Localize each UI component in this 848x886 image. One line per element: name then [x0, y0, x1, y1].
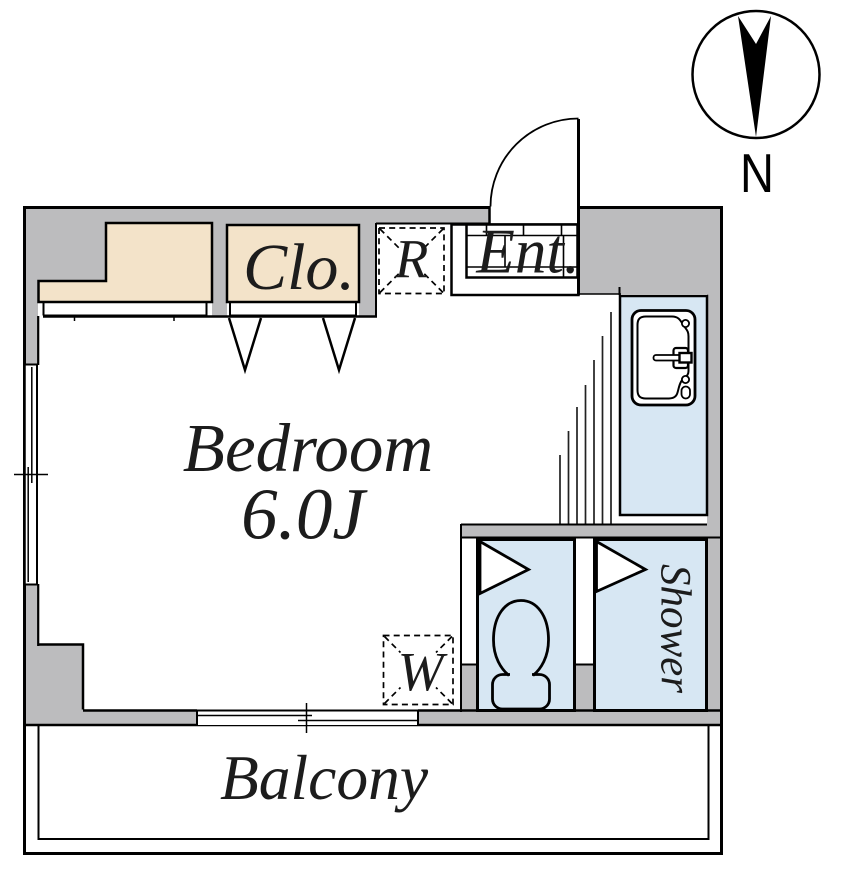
svg-text:W: W [398, 641, 448, 702]
svg-text:R: R [394, 229, 429, 290]
svg-text:6.0J: 6.0J [241, 474, 368, 555]
svg-text:N: N [740, 142, 774, 204]
svg-text:Shower: Shower [652, 564, 699, 693]
svg-text:Clo.: Clo. [243, 231, 355, 304]
svg-text:Ent.: Ent. [475, 217, 579, 287]
svg-text:Balcony: Balcony [220, 742, 429, 813]
